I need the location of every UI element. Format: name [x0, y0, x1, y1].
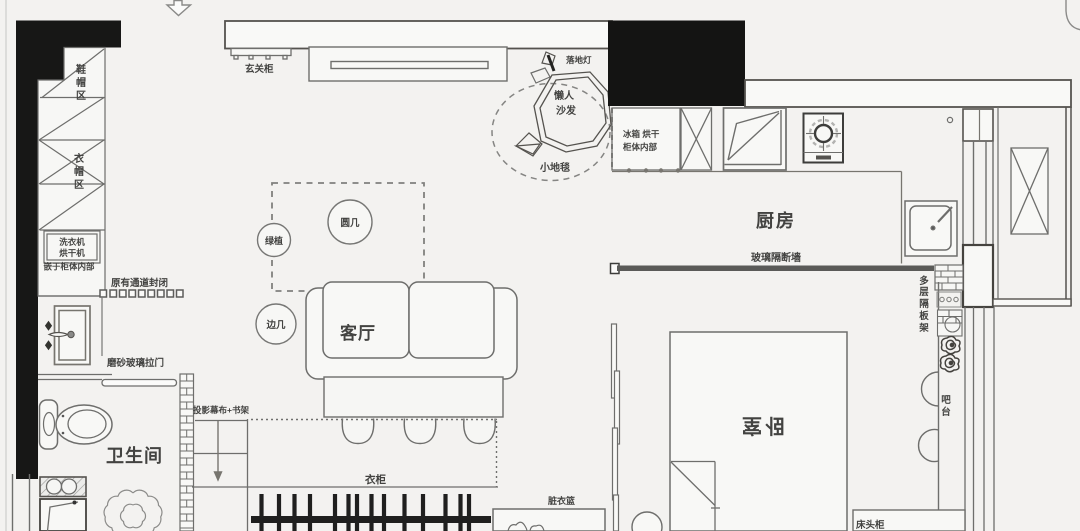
svg-text:帽: 帽: [74, 165, 84, 178]
svg-text:烘干机: 烘干机: [59, 248, 85, 258]
svg-text:层: 层: [919, 287, 929, 298]
svg-text:圆几: 圆几: [340, 218, 360, 229]
svg-text:沙发: 沙发: [556, 104, 577, 117]
svg-text:原有通道封闭: 原有通道封闭: [111, 277, 168, 289]
svg-text:玻璃隔断墙: 玻璃隔断墙: [751, 251, 801, 264]
svg-text:落地灯: 落地灯: [566, 55, 592, 65]
svg-text:架: 架: [918, 322, 929, 334]
svg-text:厨房: 厨房: [756, 210, 796, 231]
svg-text:区: 区: [76, 90, 86, 102]
svg-text:鞋: 鞋: [76, 63, 86, 76]
svg-text:柜体内部: 柜体内部: [622, 142, 658, 152]
svg-text:卧室: 卧室: [739, 414, 785, 438]
svg-text:区: 区: [74, 179, 84, 191]
svg-text:衣柜: 衣柜: [365, 473, 386, 486]
svg-text:衣: 衣: [74, 152, 84, 165]
svg-text:床头柜: 床头柜: [856, 519, 885, 531]
svg-text:磨砂玻璃拉门: 磨砂玻璃拉门: [106, 357, 164, 369]
svg-text:洗衣机: 洗衣机: [59, 237, 85, 247]
svg-text:小地毯: 小地毯: [539, 161, 570, 174]
svg-text:客厅: 客厅: [339, 323, 376, 343]
svg-text:隔: 隔: [919, 298, 929, 310]
svg-text:吧: 吧: [941, 395, 951, 406]
svg-text:绿植: 绿植: [265, 235, 283, 246]
svg-text:多: 多: [919, 275, 929, 287]
svg-text:板: 板: [919, 310, 929, 322]
svg-text:脏衣篮: 脏衣篮: [548, 495, 575, 506]
svg-text:边几: 边几: [265, 319, 286, 331]
svg-text:台: 台: [941, 406, 951, 418]
svg-text:冰箱 烘干: 冰箱 烘干: [623, 129, 660, 139]
svg-text:嵌于柜体内部: 嵌于柜体内部: [43, 262, 95, 272]
svg-text:懒人: 懒人: [554, 89, 575, 102]
svg-text:投影幕布+书架: 投影幕布+书架: [193, 405, 249, 415]
svg-text:玄关柜: 玄关柜: [245, 63, 274, 75]
svg-text:卫生间: 卫生间: [106, 445, 163, 466]
svg-text:帽: 帽: [76, 76, 86, 89]
